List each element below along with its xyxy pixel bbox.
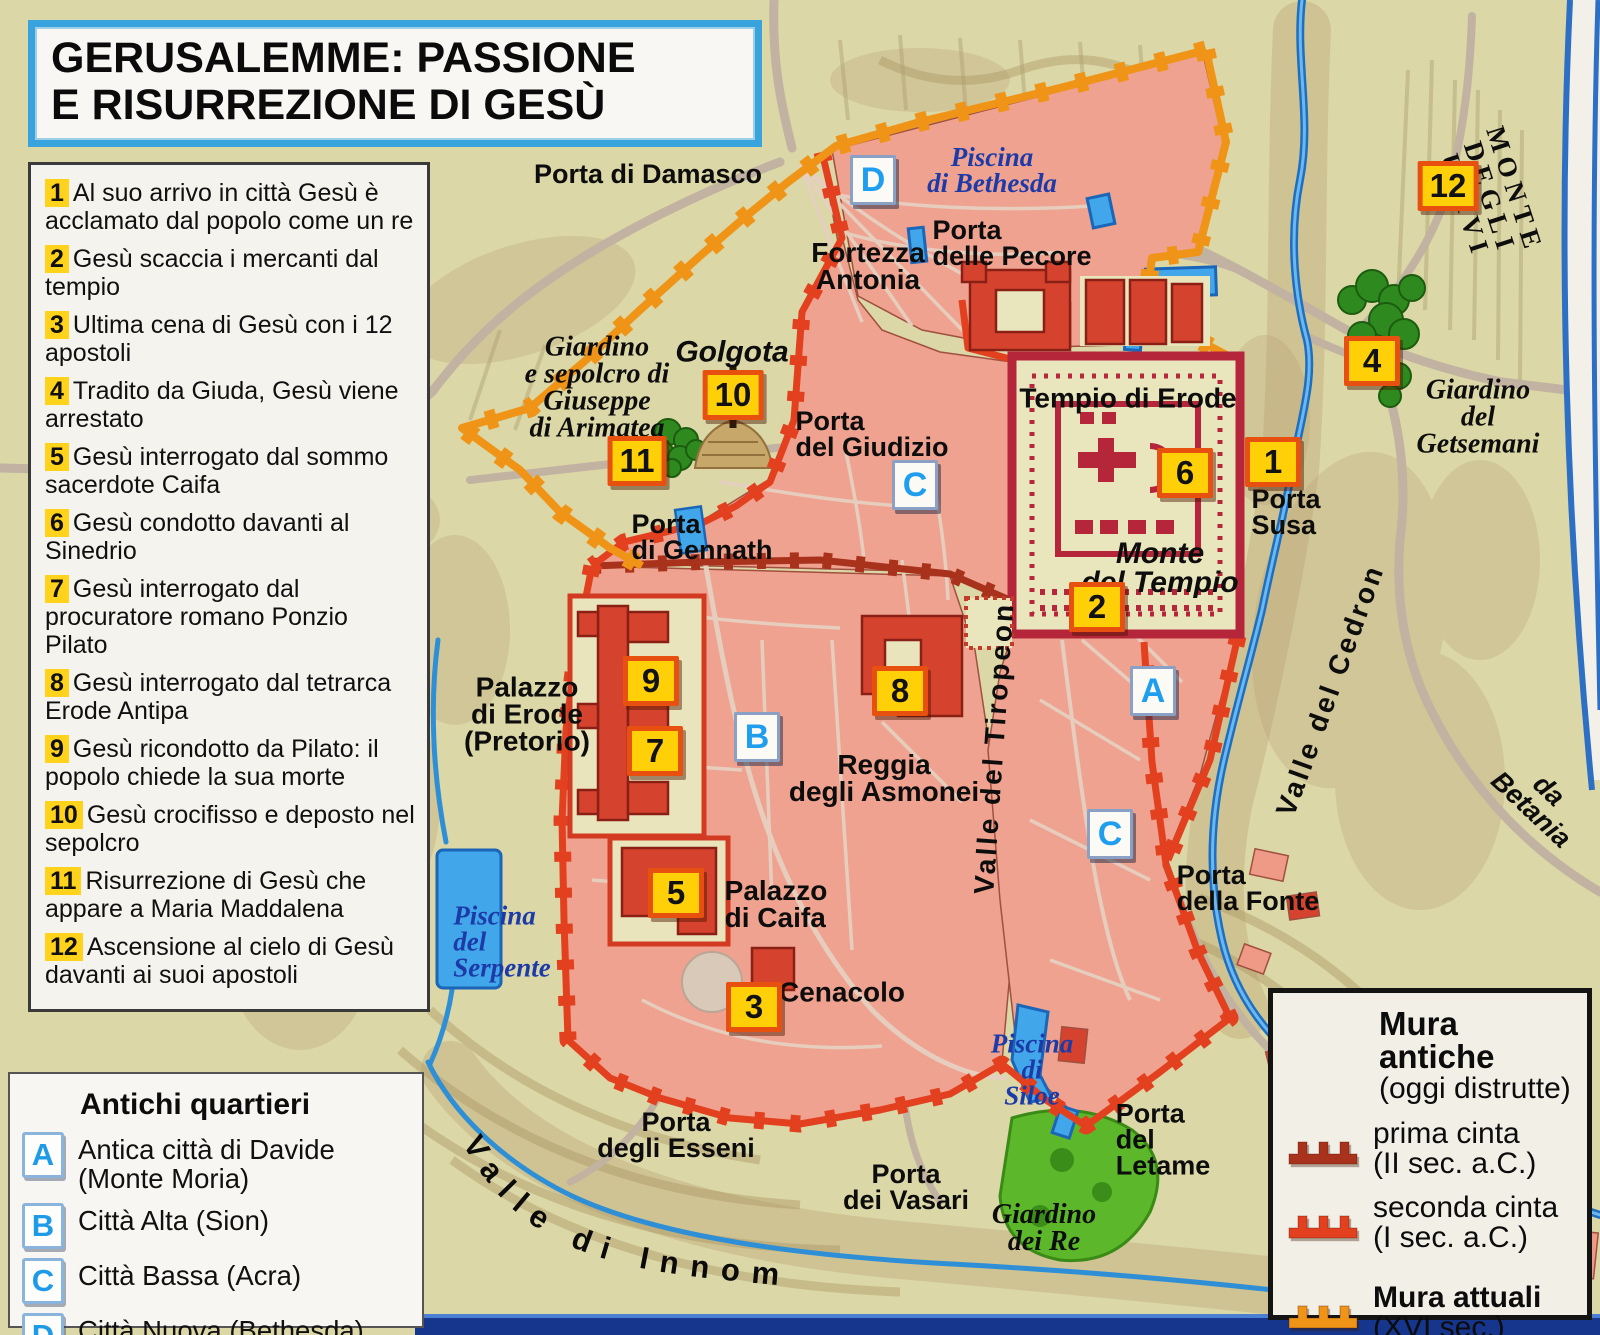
page-title-line1: GERUSALEMME: PASSIONE <box>51 35 739 82</box>
event-marker: 4 <box>1344 336 1400 386</box>
event-item: 3Ultima cena di Gesù con i 12 apostoli <box>45 311 415 367</box>
event-text: Gesù crocifisso e deposto nel sepolcro <box>45 801 415 857</box>
wall-detail: (II sec. a.C.) <box>1373 1149 1536 1179</box>
event-item: 9Gesù ricondotto da Pilato: il popolo ch… <box>45 735 415 791</box>
wall-symbol-icon <box>1287 1132 1359 1166</box>
event-number: 4 <box>45 377 69 405</box>
event-text: Ultima cena di Gesù con i 12 apostoli <box>45 311 393 367</box>
walls-list: prima cinta (II sec. a.C.) seconda cinta… <box>1287 1119 1575 1335</box>
event-text: Gesù condotto davanti al Sinedrio <box>45 509 349 565</box>
quarter-letter-chip: C <box>22 1258 64 1304</box>
event-text: Gesù interrogato dal tetrarca Erode Anti… <box>45 669 391 725</box>
quarters-legend: Antichi quartieri A Antica città di Davi… <box>8 1072 424 1328</box>
event-text: Tradito da Giuda, Gesù viene arrestato <box>45 377 399 433</box>
event-number: 5 <box>45 443 69 471</box>
quarters-heading: Antichi quartieri <box>80 1088 408 1122</box>
event-marker: 1 <box>1245 437 1301 487</box>
event-number: 2 <box>45 245 69 273</box>
event-item: 10Gesù crocifisso e deposto nel sepolcro <box>45 801 415 857</box>
event-marker: 2 <box>1069 582 1125 632</box>
event-item: 7Gesù interrogato dal procuratore romano… <box>45 575 415 659</box>
quarter-item: A Antica città di Davide (Monte Moria) <box>22 1132 408 1194</box>
event-marker: 12 <box>1418 161 1479 211</box>
event-marker: 6 <box>1157 448 1213 498</box>
walls-legend: Mura antiche (oggi distrutte) prima cint… <box>1268 988 1592 1320</box>
quarter-item: C Città Bassa (Acra) <box>22 1258 408 1304</box>
quarter-marker: C <box>892 460 938 510</box>
event-marker: 9 <box>623 656 679 706</box>
map-page: Valle di Innom Porta di DamascoPiscina d… <box>0 0 1600 1335</box>
quarter-marker: C <box>1087 809 1133 859</box>
quarter-marker: D <box>850 155 896 205</box>
event-number: 3 <box>45 311 69 339</box>
wall-text: Mura attuali (XVI sec.) <box>1373 1283 1541 1335</box>
quarter-letter-chip: A <box>22 1132 64 1178</box>
wall-label: seconda cinta <box>1373 1193 1558 1223</box>
event-text: Ascensione al cielo di Gesù davanti ai s… <box>45 933 394 989</box>
serpent-pool <box>437 850 501 988</box>
title-box: GERUSALEMME: PASSIONE E RISURREZIONE DI … <box>28 20 762 147</box>
event-text: Risurrezione di Gesù che appare a Maria … <box>45 867 366 923</box>
quarter-letter-chip: B <box>22 1203 64 1249</box>
gennath-gate <box>675 506 707 553</box>
map-edge-road <box>1565 0 1600 790</box>
wall-label: prima cinta <box>1373 1119 1536 1149</box>
event-number: 8 <box>45 669 69 697</box>
quarter-label: Città Nuova (Bethesda) <box>78 1313 364 1335</box>
quarter-marker: A <box>1130 666 1176 716</box>
walls-subheading: (oggi distrutte) <box>1379 1073 1575 1105</box>
quarter-label: Città Bassa (Acra) <box>78 1258 301 1291</box>
quarter-marker: B <box>734 712 780 762</box>
walls-heading: Mura antiche <box>1379 1007 1575 1073</box>
wall-symbol-icon <box>1287 1206 1359 1240</box>
event-number: 12 <box>45 933 83 961</box>
wall-detail: (XVI sec.) <box>1373 1313 1541 1335</box>
wall-text: prima cinta (II sec. a.C.) <box>1373 1119 1536 1179</box>
wall-detail: (I sec. a.C.) <box>1373 1223 1558 1253</box>
event-number: 6 <box>45 509 69 537</box>
event-text: Gesù interrogato dal procuratore romano … <box>45 575 348 659</box>
wall-symbol-icon <box>1287 1296 1359 1330</box>
event-item: 5Gesù interrogato dal sommo sacerdote Ca… <box>45 443 415 499</box>
page-title-line2: E RISURREZIONE DI GESÙ <box>51 82 739 129</box>
wall-item: seconda cinta (I sec. a.C.) <box>1287 1193 1575 1253</box>
city-gates <box>675 506 707 553</box>
quarter-letter-chip: D <box>22 1313 64 1335</box>
event-marker: 7 <box>627 726 683 776</box>
event-text: Al suo arrivo in città Gesù è acclamato … <box>45 179 413 235</box>
north-temple-blocks <box>1080 276 1210 346</box>
event-number: 7 <box>45 575 69 603</box>
event-item: 2Gesù scaccia i mercanti dal tempio <box>45 245 415 301</box>
event-item: 6Gesù condotto davanti al Sinedrio <box>45 509 415 565</box>
event-marker: 10 <box>703 370 764 420</box>
garden-of-kings <box>1000 1110 1158 1260</box>
wall-item: Mura attuali (XVI sec.) <box>1287 1283 1575 1335</box>
events-legend: 1Al suo arrivo in città Gesù è acclamato… <box>28 162 430 1012</box>
event-text: Gesù ricondotto da Pilato: il popolo chi… <box>45 735 379 791</box>
quarter-label: Città Alta (Sion) <box>78 1203 269 1236</box>
wall-item: prima cinta (II sec. a.C.) <box>1287 1119 1575 1179</box>
quarter-item: D Città Nuova (Bethesda) <box>22 1313 408 1335</box>
event-item: 1Al suo arrivo in città Gesù è acclamato… <box>45 179 415 235</box>
quarters-list: A Antica città di Davide (Monte Moria) B… <box>22 1132 408 1335</box>
quarter-item: B Città Alta (Sion) <box>22 1203 408 1249</box>
event-marker: 5 <box>648 868 704 918</box>
event-marker: 11 <box>608 436 667 486</box>
wall-label: Mura attuali <box>1373 1283 1541 1313</box>
event-item: 4Tradito da Giuda, Gesù viene arrestato <box>45 377 415 433</box>
herod-palace <box>570 596 704 836</box>
event-item: 8Gesù interrogato dal tetrarca Erode Ant… <box>45 669 415 725</box>
antonia-fortress <box>962 262 1070 350</box>
event-text: Gesù interrogato dal sommo sacerdote Cai… <box>45 443 388 499</box>
quarter-label: Antica città di Davide (Monte Moria) <box>78 1132 408 1194</box>
event-text: Gesù scaccia i mercanti dal tempio <box>45 245 379 301</box>
event-number: 1 <box>45 179 69 207</box>
event-number: 10 <box>45 801 83 829</box>
event-number: 9 <box>45 735 69 763</box>
event-item: 11Risurrezione di Gesù che appare a Mari… <box>45 867 415 923</box>
wall-text: seconda cinta (I sec. a.C.) <box>1373 1193 1558 1253</box>
event-marker: 3 <box>726 982 782 1032</box>
event-item: 12Ascensione al cielo di Gesù davanti ai… <box>45 933 415 989</box>
event-number: 11 <box>45 867 81 895</box>
event-marker: 8 <box>872 666 928 716</box>
